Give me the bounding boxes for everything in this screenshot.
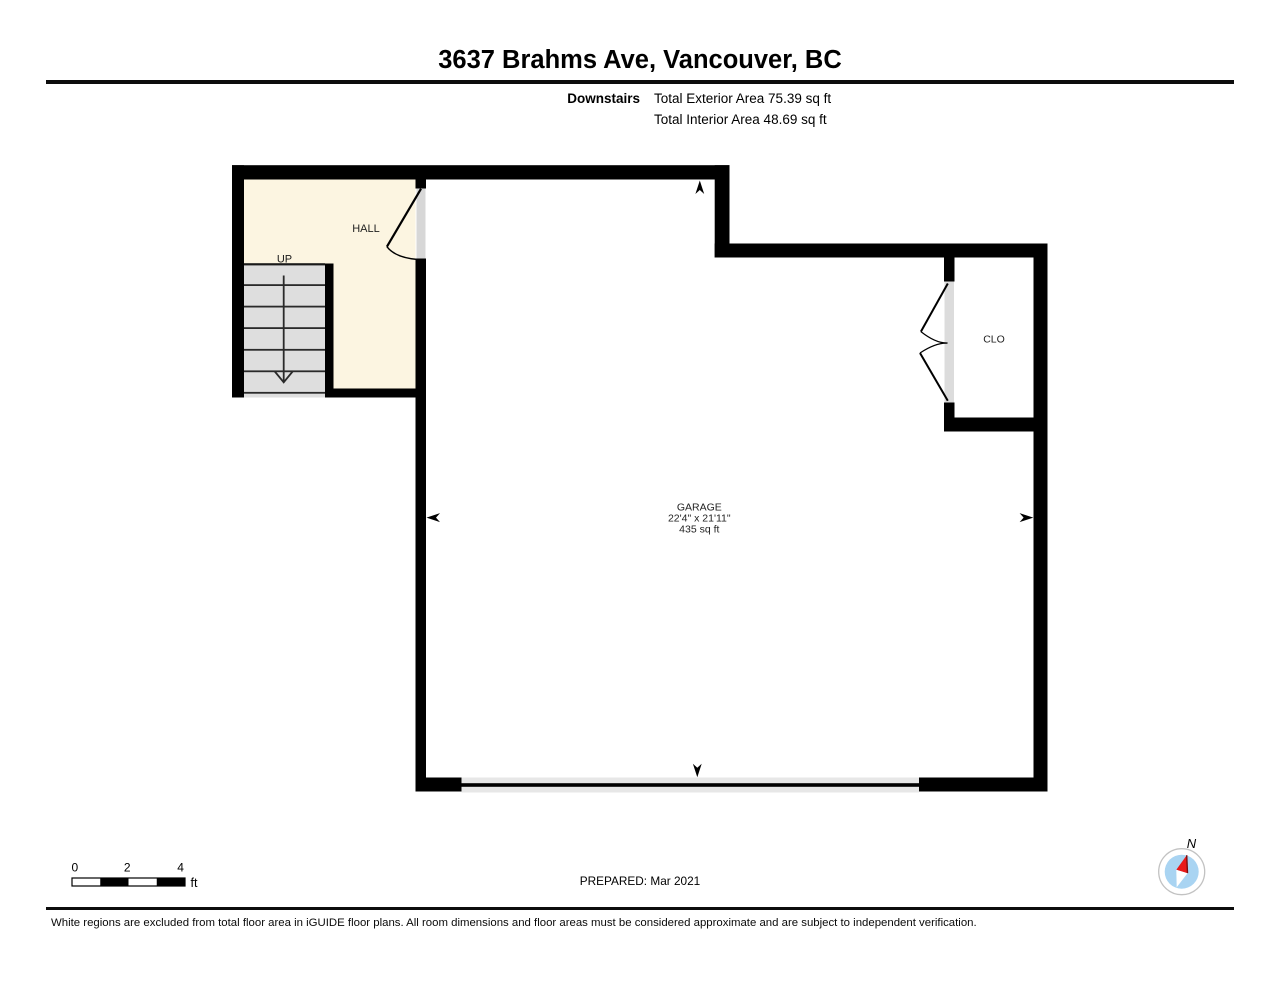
svg-text:N: N: [1187, 836, 1197, 851]
svg-text:HALL: HALL: [352, 223, 380, 235]
svg-text:0: 0: [72, 861, 79, 875]
svg-text:CLO: CLO: [983, 334, 1005, 346]
svg-text:UP: UP: [277, 254, 292, 266]
svg-text:4: 4: [177, 861, 184, 875]
svg-text:435 sq ft: 435 sq ft: [679, 524, 719, 536]
svg-text:2: 2: [124, 861, 131, 875]
